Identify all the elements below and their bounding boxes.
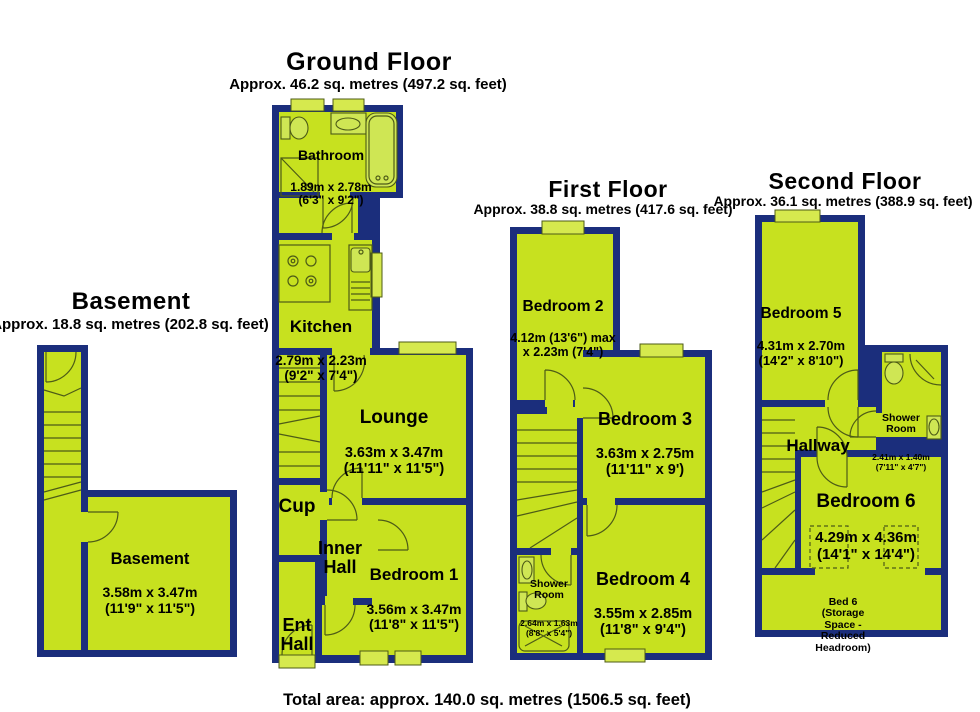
- door-opening: [825, 398, 858, 409]
- floorplan-page: Basement Approx. 18.8 sq. metres (202.8 …: [0, 0, 980, 712]
- stair-wall-stub: [517, 407, 547, 414]
- room-label-ent-hall: Ent Hall: [280, 598, 313, 673]
- room-label-hallway: Hallway: [786, 419, 849, 473]
- first-floor-title: First Floor: [548, 176, 667, 203]
- room-label-bathroom: Bathroom 1.89m x 2.78m (6'3" x 9'2"): [290, 130, 371, 225]
- room-label-inner-hall: Inner Hall: [318, 521, 362, 596]
- toilet-icon: [885, 354, 903, 384]
- door-opening: [587, 496, 615, 507]
- door-opening: [370, 518, 380, 550]
- room-label-bedroom4: Bedroom 4 3.55m x 2.85m (11'8" x 9'4"): [594, 552, 692, 656]
- basement-corridor: [44, 352, 81, 650]
- first-landing-area: [517, 407, 577, 548]
- basement-area: Approx. 18.8 sq. metres (202.8 sq. feet): [0, 316, 269, 333]
- room-label-bed6-storage: Bed 6 (Storage Space - Reduced Headroom): [815, 579, 870, 672]
- room-label-bedroom1: Bedroom 1 3.56m x 3.47m (11'8" x 11'5"): [367, 548, 462, 650]
- window-icon: [333, 99, 364, 111]
- door-opening: [325, 596, 353, 607]
- total-area-text: Total area: approx. 140.0 sq. metres (15…: [283, 691, 691, 710]
- room-label-bedroom5: Bedroom 5 4.31m x 2.70m (14'2" x 8'10"): [757, 287, 845, 385]
- basement-door-opening: [79, 512, 90, 542]
- window-icon: [399, 342, 456, 354]
- ground-floor-area: Approx. 46.2 sq. metres (497.2 sq. feet): [229, 76, 507, 93]
- second-floor-title: Second Floor: [769, 168, 922, 195]
- room-label-first-shower: Shower Room 2.64m x 1.63m (8'8" x 5'4"): [520, 561, 578, 656]
- door-opening: [575, 390, 585, 418]
- room-label-cup: Cup: [279, 479, 316, 535]
- door-opening: [332, 231, 354, 242]
- window-icon: [395, 651, 421, 665]
- room-label-bedroom6: Bedroom 6 4.29m x 4.36m (14'1" x 14'4"): [815, 474, 917, 581]
- window-icon: [640, 344, 683, 357]
- ground-floor-title: Ground Floor: [286, 48, 452, 77]
- first-floor-area: Approx. 38.8 sq. metres (417.6 sq. feet): [473, 201, 732, 217]
- window-icon: [371, 253, 382, 297]
- door-opening: [545, 398, 573, 409]
- second-floor-area: Approx. 36.1 sq. metres (388.9 sq. feet): [713, 193, 972, 209]
- room-label-bedroom2: Bedroom 2 4.12m (13'6") max x 2.23m (7'4…: [510, 280, 616, 377]
- door-opening: [551, 546, 571, 557]
- window-icon: [360, 651, 388, 665]
- basement-title: Basement: [72, 288, 191, 316]
- room-label-basement: Basement 3.58m x 3.47m (11'9" x 11'5"): [103, 532, 198, 634]
- window-icon: [775, 210, 820, 222]
- door-opening: [317, 492, 329, 520]
- window-icon: [542, 221, 584, 234]
- room-label-bedroom3: Bedroom 3 3.63m x 2.75m (11'11" x 9'): [596, 392, 694, 496]
- room-label-lounge: Lounge 3.63m x 3.47m (11'11" x 11'5"): [344, 390, 444, 496]
- window-icon: [291, 99, 324, 111]
- room-label-kitchen: Kitchen 2.79m x 2.23m (9'2" x 7'4"): [275, 300, 367, 401]
